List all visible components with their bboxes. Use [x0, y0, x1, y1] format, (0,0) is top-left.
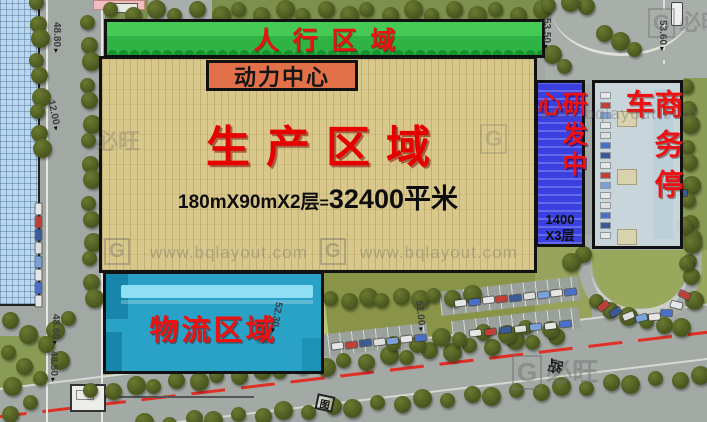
tree-icon — [440, 393, 455, 408]
tree-icon — [399, 350, 414, 365]
tree-icon — [81, 196, 96, 211]
tree-icon — [621, 375, 640, 394]
car-icon — [36, 296, 42, 307]
tree-icon — [29, 53, 44, 68]
tree-icon — [146, 379, 161, 394]
tree-icon — [82, 251, 97, 266]
tree-icon — [105, 383, 122, 400]
tree-icon — [30, 104, 45, 119]
tree-icon — [301, 405, 316, 420]
tree-icon — [603, 374, 620, 391]
car-icon — [387, 337, 399, 344]
elevation-value: 48.80 — [51, 22, 62, 47]
zone-rnd-center: 研发中心 1400 X3层 — [535, 80, 585, 247]
tree-icon — [33, 139, 52, 158]
marker-arrow-icon: ▸ — [269, 328, 277, 333]
car-icon — [515, 325, 527, 332]
rnd-floors: X3层 — [546, 228, 575, 244]
car-icon — [661, 310, 672, 317]
elevation-value: 53.50 — [541, 18, 552, 43]
tree-icon — [103, 2, 118, 17]
tree-icon — [484, 339, 501, 356]
tree-icon — [31, 67, 48, 84]
marker-arrow-icon: ▸ — [49, 378, 56, 382]
car-icon — [36, 269, 42, 280]
tree-icon — [276, 0, 295, 19]
zone-logistics-area: 物流 物流区域 — [103, 271, 324, 374]
car-icon — [468, 298, 480, 305]
car-icon — [36, 243, 42, 254]
car-icon — [545, 322, 557, 329]
tree-icon — [627, 42, 642, 57]
tree-icon — [446, 1, 463, 18]
tree-icon — [359, 2, 374, 17]
gate-barrier — [106, 396, 254, 398]
tree-icon — [83, 211, 100, 228]
car-icon — [36, 217, 42, 228]
tree-icon — [488, 2, 503, 17]
elevation-value: 48.60 — [50, 314, 61, 339]
tree-icon — [1, 345, 16, 360]
elevation-value: 53.60 — [657, 20, 668, 45]
tree-icon — [255, 408, 272, 422]
tree-icon — [681, 115, 700, 134]
marker-arrow-icon: ▸ — [417, 327, 424, 331]
tree-icon — [426, 288, 441, 303]
production-spec-area: 32400平米 — [329, 184, 458, 214]
tree-icon — [336, 353, 351, 368]
tree-icon — [80, 15, 95, 30]
dock-strip — [121, 285, 313, 298]
rnd-capacity: 1400 — [546, 212, 575, 228]
car-icon — [346, 341, 358, 348]
zone-power-center: 动力中心 — [206, 60, 358, 91]
tree-icon — [16, 358, 33, 375]
tree-icon — [394, 396, 411, 413]
tree-icon — [393, 288, 410, 305]
zone-pedestrian-area: 人行区域 — [104, 19, 545, 58]
zone-business-parking: 商务停车 — [592, 80, 683, 249]
pedestrian-label: 人行区域 — [239, 21, 409, 57]
production-label: 生产区域 — [102, 111, 534, 175]
tree-icon — [679, 256, 694, 271]
tree-icon — [557, 59, 572, 74]
tree-icon — [413, 389, 432, 408]
power-center-label: 动力中心 — [234, 60, 330, 92]
tree-icon — [186, 410, 203, 422]
tree-icon — [168, 372, 185, 389]
tree-icon — [33, 371, 48, 386]
elevation-marker: 48.50▸ — [48, 351, 59, 382]
car-icon — [373, 338, 385, 345]
logistics-label: 物流区域 — [106, 307, 321, 349]
marker-arrow-icon: ▸ — [51, 341, 58, 345]
tree-icon — [579, 381, 594, 396]
car-icon — [36, 204, 42, 215]
elevation-value: 48.50 — [48, 351, 59, 376]
tree-icon — [358, 354, 375, 371]
car-icon — [496, 295, 508, 302]
tree-icon — [23, 395, 38, 410]
marker-arrow-icon: ▸ — [52, 126, 60, 131]
tree-icon — [231, 2, 246, 17]
tree-icon — [81, 92, 98, 109]
tree-icon — [3, 377, 22, 396]
dock-strip-shadow — [121, 300, 313, 304]
tree-icon — [672, 318, 691, 337]
tree-icon — [231, 407, 246, 422]
tree-icon — [552, 377, 571, 396]
marker-arrow-icon: ▸ — [658, 47, 665, 51]
tree-icon — [83, 383, 98, 398]
car-icon — [649, 313, 661, 320]
tree-icon — [2, 406, 19, 422]
marker-arrow-icon: ▸ — [52, 49, 59, 53]
tree-icon — [691, 366, 707, 385]
site-plan: 人行区域 生产区域 180mX90mX2层=32400平米 动力中心 研发中心 … — [0, 0, 707, 422]
tree-icon — [370, 395, 385, 410]
tree-icon — [80, 78, 95, 93]
tree-icon — [127, 376, 146, 395]
tree-icon — [672, 372, 689, 389]
tree-icon — [341, 293, 358, 310]
tree-icon — [541, 0, 556, 13]
tree-icon — [404, 0, 423, 19]
tree-icon — [31, 29, 50, 48]
car-icon — [485, 328, 497, 335]
elevation-marker: 53.50▸ — [541, 18, 552, 49]
tree-icon — [683, 235, 702, 254]
bus-icon — [671, 2, 683, 26]
tree-icon — [147, 0, 166, 19]
marker-arrow-icon: ▸ — [542, 45, 549, 49]
tree-icon — [318, 1, 335, 18]
car-icon — [36, 256, 42, 267]
tree-icon — [562, 253, 581, 272]
tree-icon — [189, 1, 206, 18]
elevation-marker: 48.60▸ — [50, 314, 61, 345]
tree-icon — [81, 133, 96, 148]
tree-icon — [464, 386, 481, 403]
tree-icon — [2, 312, 19, 329]
production-spec-equals: = — [320, 195, 329, 212]
tree-icon — [61, 311, 76, 326]
tree-icon — [432, 328, 451, 347]
tree-icon — [85, 289, 104, 308]
tree-icon — [648, 371, 663, 386]
tree-icon — [596, 25, 613, 42]
tree-icon — [29, 0, 44, 10]
tree-icon — [681, 154, 698, 171]
car-icon — [36, 230, 42, 241]
car-icon — [537, 291, 549, 298]
map-stamp: 图 — [315, 393, 336, 412]
tree-icon — [509, 383, 524, 398]
tree-icon — [343, 399, 362, 418]
car-icon — [36, 282, 42, 293]
car-icon — [510, 294, 522, 301]
tree-icon — [19, 325, 38, 344]
elevation-marker: 48.80▸ — [51, 22, 62, 53]
tree-icon — [578, 0, 595, 15]
tree-icon — [533, 384, 550, 401]
rnd-center-label: 研发中心 — [535, 91, 585, 206]
tree-icon — [323, 291, 338, 306]
tree-icon — [274, 401, 293, 420]
tree-icon — [452, 332, 467, 347]
elevation-marker: 53.60▸ — [657, 20, 668, 51]
tree-icon — [482, 387, 501, 406]
production-spec: 180mX90mX2层=32400平米 — [102, 177, 534, 216]
production-spec-dimensions: 180mX90mX2层 — [178, 192, 320, 213]
business-parking-label: 商务停车 — [595, 89, 680, 246]
